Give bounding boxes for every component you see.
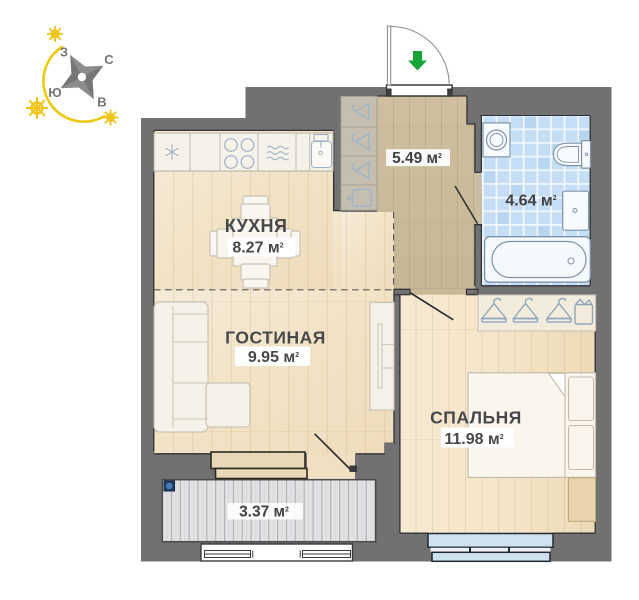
svg-text:З: З (60, 45, 68, 60)
svg-text:СПАЛЬНЯ: СПАЛЬНЯ (430, 408, 522, 428)
svg-text:11.98 м2: 11.98 м2 (444, 431, 503, 448)
svg-text:С: С (104, 52, 114, 67)
svg-text:3.37 м2: 3.37 м2 (239, 504, 289, 521)
svg-text:ГОСТИНАЯ: ГОСТИНАЯ (225, 328, 326, 348)
svg-text:Ю: Ю (48, 85, 61, 100)
svg-text:В: В (97, 95, 106, 110)
svg-text:5.49 м2: 5.49 м2 (392, 150, 442, 167)
svg-text:КУХНЯ: КУХНЯ (225, 216, 288, 236)
svg-text:9.95 м2: 9.95 м2 (248, 349, 299, 366)
svg-text:8.27 м2: 8.27 м2 (232, 240, 283, 257)
svg-text:4.64 м2: 4.64 м2 (505, 193, 556, 210)
